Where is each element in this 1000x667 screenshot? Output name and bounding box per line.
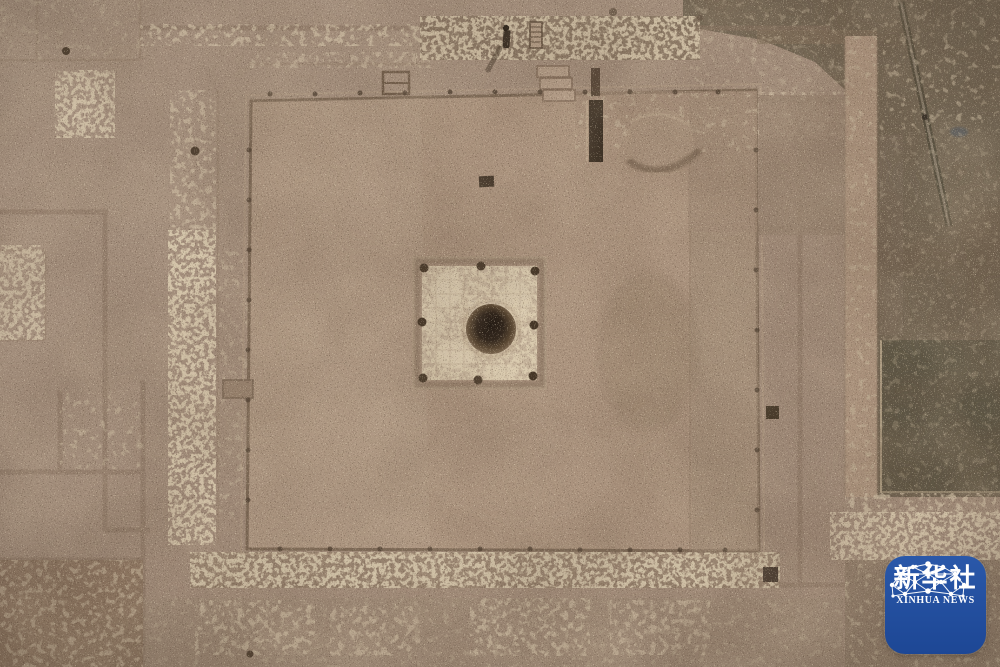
- xinhua-watermark: 新华社 XINHUA NEWS: [885, 556, 986, 654]
- aerial-photo: 新华社 XINHUA NEWS: [0, 0, 1000, 667]
- vignette: [0, 0, 1000, 667]
- constellation-icon: [885, 558, 971, 600]
- aerial-photo-canvas: [0, 0, 1000, 667]
- photo-texture: [0, 0, 1000, 667]
